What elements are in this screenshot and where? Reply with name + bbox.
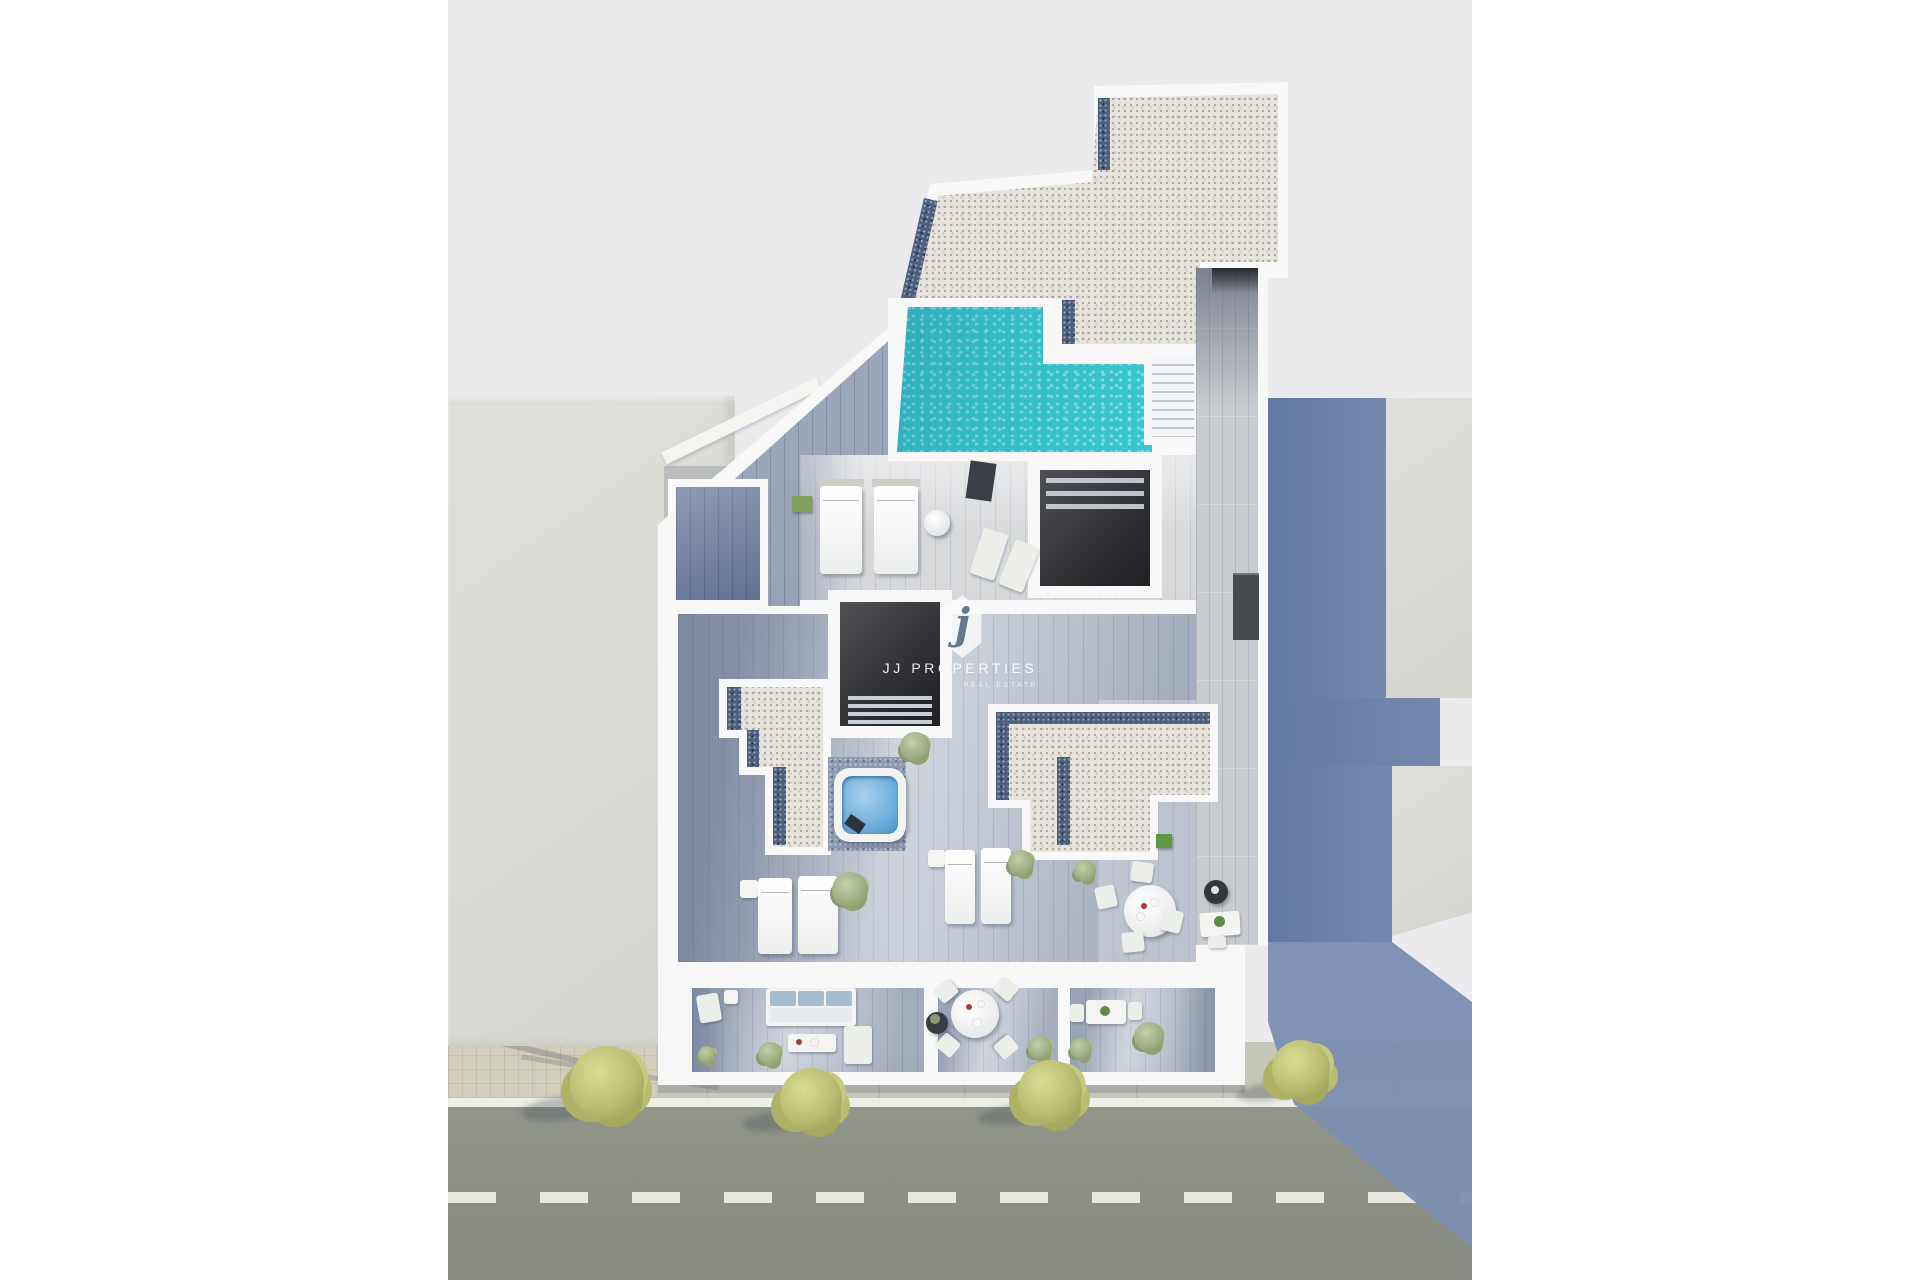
lounge-chair bbox=[696, 992, 723, 1023]
watermark-title: JJ PROPERTIES bbox=[860, 660, 1060, 676]
terrace-plant bbox=[900, 732, 930, 762]
bistro-chair bbox=[1128, 1002, 1142, 1020]
side-table bbox=[740, 880, 758, 898]
skylight-rail bbox=[1046, 491, 1144, 496]
pot-plant-sprig bbox=[930, 1014, 940, 1024]
deck-doorway-shadow bbox=[1212, 268, 1258, 294]
planter-box bbox=[792, 496, 812, 512]
watermark-subtitle-text: REAL ESTATE bbox=[963, 682, 1038, 689]
green-box bbox=[1156, 834, 1172, 848]
stair-void bbox=[1040, 470, 1150, 586]
balcony-plant bbox=[1028, 1036, 1052, 1060]
sun-lounger bbox=[758, 878, 792, 954]
balcony-plant bbox=[698, 1046, 716, 1064]
sofa-cushion bbox=[826, 991, 852, 1006]
sun-lounger bbox=[945, 850, 975, 924]
planter-dark-strip bbox=[747, 730, 759, 767]
cast-shadow-band bbox=[1268, 698, 1440, 766]
sofa-cushion bbox=[798, 991, 824, 1006]
watermark-title-text: JJ PROPERTIES bbox=[883, 660, 1038, 676]
building-front-shadow bbox=[658, 1085, 1245, 1093]
hvac-unit bbox=[1233, 573, 1259, 640]
planter-dark-strip bbox=[1057, 757, 1070, 845]
street-tree bbox=[1018, 1060, 1082, 1124]
balcony-plant bbox=[1134, 1022, 1164, 1052]
terrace-room-floor bbox=[676, 487, 760, 600]
cast-shadow-band bbox=[1268, 398, 1386, 698]
render-canvas: j JJ PROPERTIES REAL ESTATE bbox=[0, 0, 1920, 1280]
sun-lounger bbox=[981, 848, 1011, 924]
table-plate bbox=[972, 1018, 982, 1028]
table-item-red bbox=[796, 1039, 802, 1045]
planter-dark-strip bbox=[727, 687, 741, 730]
stair-tread bbox=[848, 720, 932, 724]
stair-tread bbox=[848, 696, 932, 700]
sofa-seat bbox=[770, 1008, 852, 1022]
table-item-red bbox=[966, 1004, 972, 1010]
skylight-rail bbox=[1046, 504, 1144, 509]
neighbor-building-right bbox=[1392, 766, 1472, 936]
table-item-red bbox=[1141, 903, 1147, 909]
planter-dark-strip bbox=[996, 712, 1210, 724]
terrace-plant bbox=[1008, 850, 1034, 876]
neighbor-building-right bbox=[1386, 398, 1472, 698]
dining-chair bbox=[1121, 931, 1145, 953]
dark-mat bbox=[965, 460, 996, 501]
balcony-plant bbox=[758, 1042, 782, 1066]
watermark-subtitle: REAL ESTATE bbox=[890, 682, 1038, 689]
table-plate bbox=[977, 1000, 985, 1008]
planter-dark-strip bbox=[773, 767, 786, 845]
desk-plant bbox=[1214, 916, 1225, 927]
dining-chair bbox=[1094, 884, 1118, 910]
desk-chair bbox=[1208, 936, 1226, 948]
balcony-dining-table bbox=[951, 990, 999, 1038]
stair-tread bbox=[848, 712, 932, 716]
gravel-border-strip bbox=[1098, 98, 1110, 170]
terrace-plant bbox=[1074, 860, 1096, 882]
street-tree bbox=[1272, 1040, 1330, 1098]
sun-bed bbox=[820, 486, 862, 574]
lounge-chair bbox=[844, 1026, 872, 1064]
skylight-rail bbox=[1046, 478, 1144, 483]
table-plant bbox=[1100, 1006, 1110, 1016]
table-plate bbox=[1150, 898, 1159, 907]
gravel-border-strip bbox=[1062, 300, 1075, 344]
pouf bbox=[924, 510, 950, 536]
sofa-cushion bbox=[770, 991, 796, 1006]
table-plate bbox=[810, 1038, 819, 1047]
watermark-badge-letter: j bbox=[955, 599, 970, 648]
sun-bed bbox=[874, 486, 918, 574]
pool-stairs bbox=[1152, 357, 1194, 437]
street-tree bbox=[780, 1068, 842, 1130]
side-table bbox=[724, 990, 738, 1004]
balcony-plant bbox=[1070, 1038, 1092, 1060]
street-dashed-line bbox=[448, 1192, 1472, 1203]
street-tree bbox=[570, 1046, 644, 1120]
planter-dark-strip bbox=[996, 724, 1009, 800]
dining-chair bbox=[1130, 861, 1155, 884]
side-table-item bbox=[1211, 886, 1219, 894]
terrace-plant bbox=[832, 872, 868, 908]
bistro-chair bbox=[1070, 1004, 1084, 1022]
cast-shadow-band bbox=[1268, 766, 1392, 942]
side-table bbox=[928, 850, 945, 867]
table-plate bbox=[1136, 912, 1145, 921]
stair-tread bbox=[848, 704, 932, 708]
